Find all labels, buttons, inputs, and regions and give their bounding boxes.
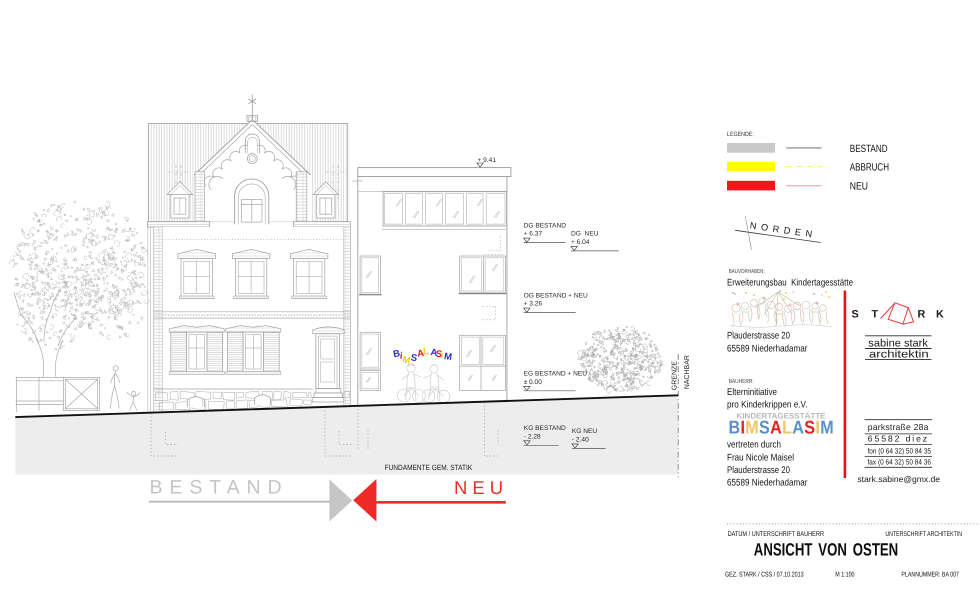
svg-text:LEGENDE:: LEGENDE:	[727, 131, 754, 138]
svg-text:65589 Niederhadamar: 65589 Niederhadamar	[727, 477, 808, 488]
svg-text:+ 6.37: + 6.37	[524, 231, 543, 238]
svg-text:DG NEU: DG NEU	[571, 231, 599, 238]
svg-text:ANSICHT VON OSTEN: ANSICHT VON OSTEN	[754, 539, 898, 559]
svg-text:K: K	[936, 309, 944, 321]
svg-text:S: S	[852, 309, 859, 321]
svg-text:Elterninitiative: Elterninitiative	[727, 387, 777, 398]
svg-text:BAUHERR:: BAUHERR:	[729, 378, 754, 385]
svg-text:M: M	[443, 351, 452, 363]
svg-text:stark.sabine@gmx.de: stark.sabine@gmx.de	[857, 474, 940, 484]
svg-text:Plauderstrasse 20: Plauderstrasse 20	[727, 465, 790, 476]
svg-text:FUNDAMENTE GEM. STATIK: FUNDAMENTE GEM. STATIK	[385, 463, 473, 472]
svg-text:DG BESTAND: DG BESTAND	[524, 222, 567, 229]
svg-text:NEU: NEU	[850, 181, 868, 193]
svg-text:parkstraße 28a: parkstraße 28a	[868, 422, 930, 432]
svg-text:BESTAND: BESTAND	[150, 477, 289, 499]
svg-text:R: R	[918, 309, 926, 321]
svg-text:BESTAND: BESTAND	[850, 143, 888, 155]
svg-text:L: L	[423, 346, 430, 357]
svg-text:T: T	[872, 309, 879, 321]
svg-text:fon (0 64 32) 50 84 35: fon (0 64 32) 50 84 35	[868, 447, 932, 456]
svg-text:DATUM / UNTERSCHRIFT BAUHERR: DATUM / UNTERSCHRIFT BAUHERR	[728, 530, 824, 538]
svg-text:GRENZE: GRENZE	[671, 361, 678, 391]
svg-text:65582 diez: 65582 diez	[868, 434, 930, 444]
svg-text:EG BESTAND + NEU: EG BESTAND + NEU	[524, 371, 588, 378]
svg-text:architektin: architektin	[869, 348, 929, 360]
svg-text:+ 3.26: + 3.26	[524, 301, 543, 308]
svg-text:Plauderstrasse 20: Plauderstrasse 20	[727, 331, 790, 342]
svg-text:NEU: NEU	[454, 477, 508, 498]
svg-text:pro Kinderkrippen e.V.: pro Kinderkrippen e.V.	[727, 399, 808, 410]
svg-text:Erweiterungsbau Kindertagesst: Erweiterungsbau Kindertagesstätte	[727, 278, 853, 289]
svg-text:Frau Nicole Maisel: Frau Nicole Maisel	[727, 452, 794, 463]
svg-text:NACHBAR: NACHBAR	[684, 355, 691, 389]
svg-text:+ 6.04: + 6.04	[571, 239, 590, 246]
svg-text:KG BESTAND: KG BESTAND	[524, 425, 566, 432]
svg-text:fax (0 64 32) 50 84 36: fax (0 64 32) 50 84 36	[868, 458, 932, 467]
svg-text:vertreten durch: vertreten durch	[727, 440, 781, 451]
svg-text:M 1:100: M 1:100	[835, 572, 854, 579]
svg-text:PLANNUMMER: BA 007: PLANNUMMER: BA 007	[901, 572, 959, 579]
svg-text:KG NEU: KG NEU	[572, 428, 598, 435]
svg-text:± 0.00: ± 0.00	[524, 379, 543, 386]
svg-text:- 2.28: - 2.28	[524, 433, 541, 440]
svg-text:OG BESTAND + NEU: OG BESTAND + NEU	[524, 292, 588, 299]
svg-text:BIMSALASIM: BIMSALASIM	[729, 417, 834, 438]
svg-text:- 2.40: - 2.40	[572, 437, 589, 444]
svg-text:UNTERSCHRIFT ARCHITEKTIN: UNTERSCHRIFT ARCHITEKTIN	[885, 531, 962, 538]
svg-text:GEZ. STARK / CSS / 07.10.2013: GEZ. STARK / CSS / 07.10.2013	[725, 572, 804, 579]
svg-text:65589 Niederhadamar: 65589 Niederhadamar	[727, 343, 808, 354]
svg-text:BAUVORHABEN:: BAUVORHABEN:	[729, 268, 765, 275]
svg-text:ABBRUCH: ABBRUCH	[850, 162, 889, 174]
